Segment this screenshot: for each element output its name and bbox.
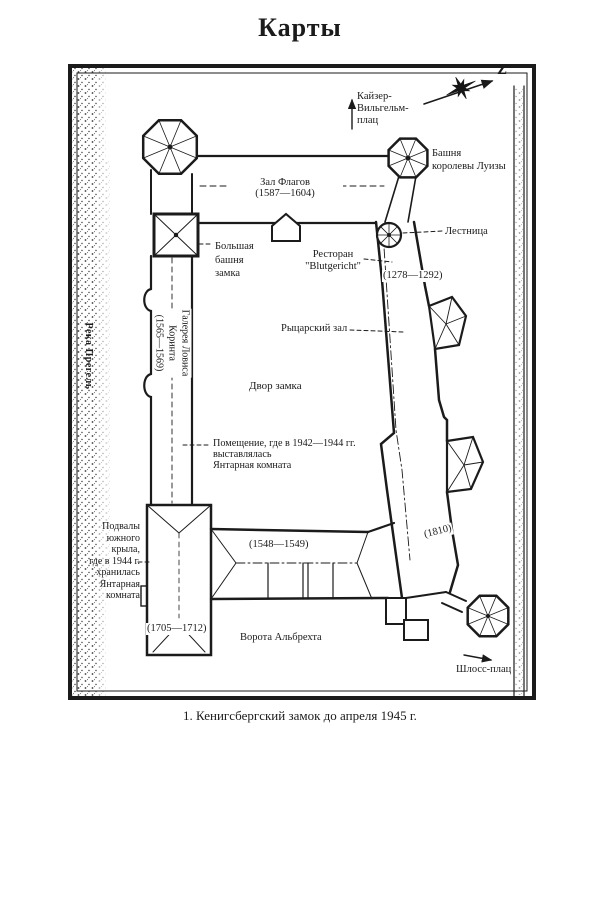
label-castle-courtyard: Двор замка <box>249 380 302 392</box>
label-years-1278-1292: (1278—1292) <box>382 270 444 282</box>
northwest-octagon-tower <box>143 120 197 174</box>
label-pregel-river: Река Прегель <box>82 322 94 389</box>
big-castle-tower-shape <box>154 214 198 256</box>
label-flags-hall: Зал Флагов (1587—1604) <box>227 177 343 199</box>
west-wing-walls <box>144 256 192 506</box>
label-staircase: Лестница <box>445 226 488 238</box>
label-albrecht-gate: Ворота Альбрехта <box>240 632 322 644</box>
compass-rose <box>424 77 492 104</box>
label-knights-hall: Рыцарский зал <box>281 323 347 335</box>
compass-north-letter: Z <box>497 64 507 76</box>
figure-caption: 1. Кенигсбергский замок до апреля 1945 г… <box>0 708 600 724</box>
east-bay-upper <box>429 297 466 349</box>
label-schloss-platz: Шлосс-плац <box>456 664 511 676</box>
arrows <box>352 100 491 660</box>
east-bay-lower <box>447 437 483 492</box>
label-kaiser-wilhelm-platz: Кайзер- Вильгельм- плац <box>357 91 409 127</box>
spiral-staircase <box>377 223 401 247</box>
label-lovis-corinth-gallery: Галерея Ловиса Коринта (1565—1569) <box>153 309 192 378</box>
north-porch <box>272 214 300 241</box>
street-edge <box>514 86 524 696</box>
label-amber-room-display: Помещение, где в 1942—1944 гг. выставлял… <box>213 438 356 471</box>
queen-louise-tower-shape <box>389 139 428 178</box>
label-queen-louise-tower: Башня королевы Луизы <box>432 148 506 173</box>
label-south-wing-basements: Подвалы южного крыла, где в 1944 г. хран… <box>80 521 140 602</box>
schlossplatz-arrow <box>464 655 491 660</box>
label-years-1548-1549: (1548—1549) <box>248 539 310 551</box>
albrecht-gate-structures <box>386 592 466 640</box>
label-restaurant-blutgericht: Ресторан "Blutgericht" <box>302 249 364 272</box>
page-title: Карты <box>0 13 600 43</box>
south-wing-walls <box>211 523 394 599</box>
label-years-1705-1712: (1705—1712) <box>146 623 208 635</box>
southeast-octagon-tower <box>468 596 509 637</box>
label-big-castle-tower: Большая башня замка <box>215 240 254 281</box>
